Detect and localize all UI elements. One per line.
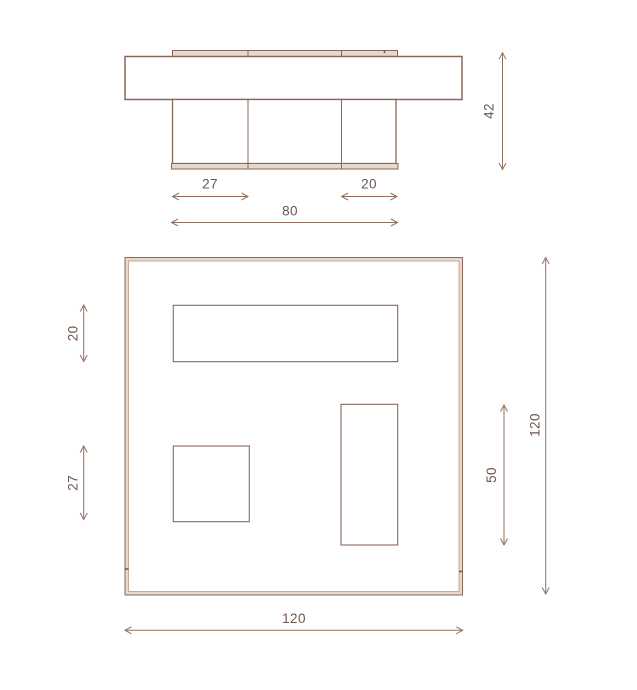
- dimension-total-height: 42: [482, 53, 503, 170]
- base-strip: [172, 164, 399, 170]
- dimension-label: 20: [66, 325, 81, 341]
- dimension-right-leg-width: 20: [342, 177, 398, 197]
- dimension-label: 120: [528, 413, 543, 437]
- tabletop-slab-outline: [125, 57, 462, 100]
- dimension-label: 20: [361, 177, 377, 192]
- dimension-label: 120: [282, 611, 306, 626]
- dimension-legs-span: 80: [172, 204, 398, 223]
- dimension-side-length: 120: [528, 258, 546, 595]
- dimension-side-slot-length: 50: [484, 405, 504, 545]
- technical-drawing-sheet: 27 20 80 42 20: [0, 0, 637, 690]
- tabletop-top-edge-strip: [173, 51, 398, 57]
- dimension-label: 42: [482, 103, 497, 119]
- plan-square-leg: [173, 446, 249, 522]
- dimension-label: 50: [484, 467, 499, 483]
- drawing-svg: 27 20 80 42 20: [0, 0, 637, 690]
- dimension-label: 80: [282, 204, 298, 219]
- plan-side-slot: [341, 404, 398, 545]
- plan-top-slot: [173, 305, 397, 361]
- dimension-front-width: 120: [125, 611, 463, 630]
- dimension-square-leg-size: 27: [66, 446, 84, 520]
- dimension-top-slot-depth: 20: [66, 305, 84, 362]
- legs-outline: [173, 100, 397, 164]
- dimension-left-leg-width: 27: [173, 177, 249, 197]
- top-plan-view: 20 27 50 120 120: [66, 258, 546, 631]
- front-elevation-view: 27 20 80 42: [125, 51, 503, 223]
- dimension-label: 27: [66, 475, 81, 491]
- dimension-label: 27: [202, 177, 218, 192]
